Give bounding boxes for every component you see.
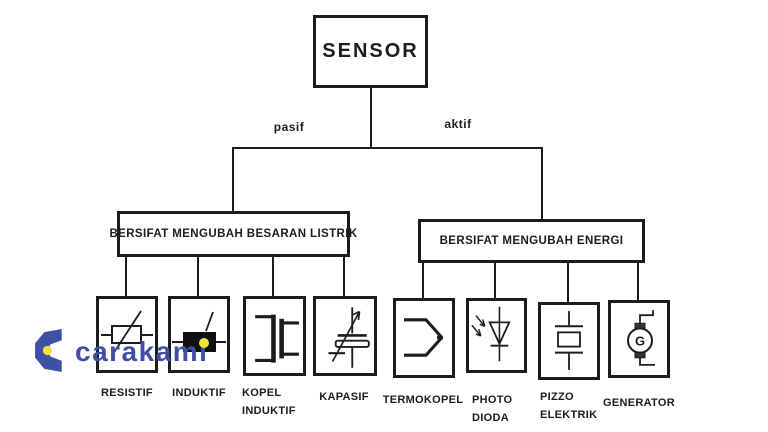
symbol-box-pizzo-elektrik (538, 302, 600, 380)
sensor-root-label: SENSOR (322, 40, 418, 63)
carakami-logo-icon (34, 329, 71, 372)
connector-line (422, 261, 424, 299)
connector-line (541, 147, 543, 220)
connector-line (370, 88, 372, 148)
connector-line (637, 261, 639, 301)
inductor-icon (171, 299, 227, 370)
sensor-root-node: SENSOR (313, 15, 428, 88)
symbol-box-photo-dioda (466, 298, 527, 373)
symbol-box-induktif (168, 296, 230, 373)
generator-icon: G (611, 303, 667, 375)
connector-line (343, 256, 345, 297)
connector-line (232, 147, 234, 212)
thermocouple-icon (396, 301, 452, 375)
symbol-box-resistif (96, 296, 158, 373)
symbol-box-termokopel (393, 298, 455, 378)
connector-line (125, 256, 127, 297)
sensor-classification-diagram: SENSOR pasif aktif BERSIFAT MENGUBAH BES… (0, 0, 768, 432)
piezoelectric-icon (541, 305, 597, 377)
label-kapasif: KAPASIF (302, 388, 386, 406)
category-node-besaran-listrik: BERSIFAT MENGUBAH BESARAN LISTRIK (117, 211, 350, 257)
category-node-energi: BERSIFAT MENGUBAH ENERGI (418, 219, 645, 263)
connector-line (567, 261, 569, 303)
category-label: BERSIFAT MENGUBAH ENERGI (440, 235, 624, 247)
edge-label-aktif: aktif (428, 117, 488, 131)
connector-line (197, 256, 199, 297)
photodiode-icon (469, 301, 524, 370)
generator-letter: G (635, 334, 645, 349)
connector-line (272, 256, 274, 297)
label-generator: GENERATOR (597, 394, 681, 412)
resistor-icon (99, 299, 155, 370)
label-induktif: INDUKTIF (158, 384, 240, 402)
label-resistif: RESISTIF (86, 384, 168, 402)
edge-label-pasif: pasif (259, 120, 319, 134)
symbol-box-generator: G (608, 300, 670, 378)
symbol-box-kopel-induktif (243, 296, 306, 376)
label-termokopel: TERMOKOPEL (381, 391, 465, 409)
coupled-inductor-icon (246, 299, 303, 373)
category-label: BERSIFAT MENGUBAH BESARAN LISTRIK (109, 228, 357, 240)
connector-line (494, 261, 496, 299)
variable-capacitor-icon (316, 299, 374, 373)
symbol-box-kapasif (313, 296, 377, 376)
connector-line (232, 147, 543, 149)
